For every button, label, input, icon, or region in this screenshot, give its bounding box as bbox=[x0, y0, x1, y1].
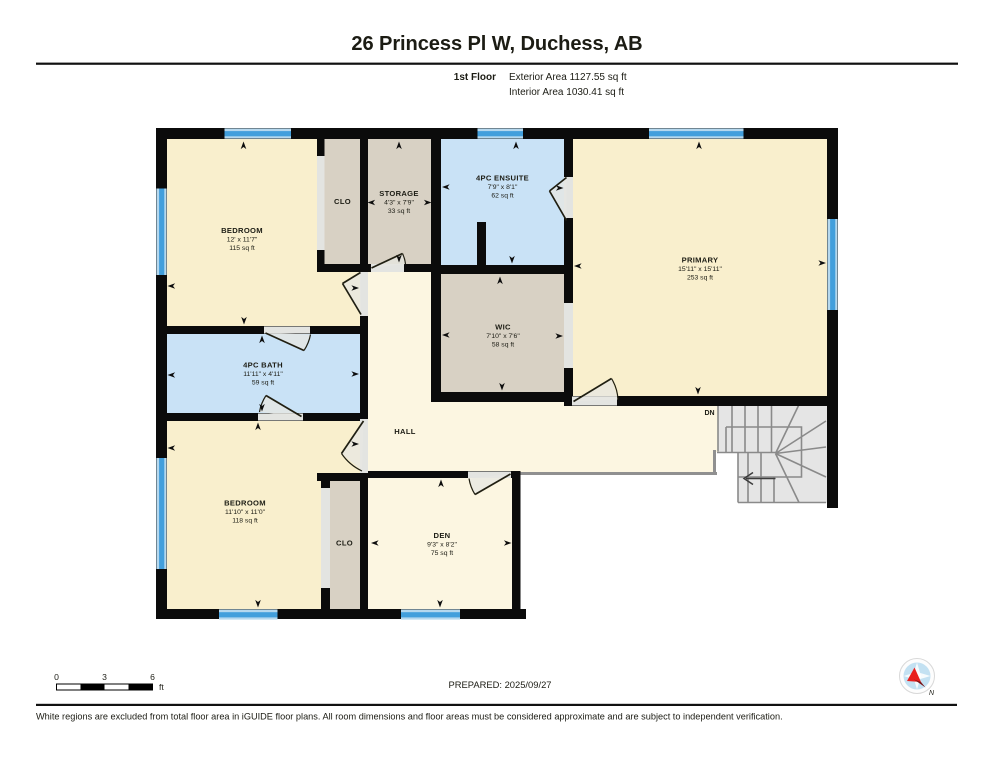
svg-text:1st Floor: 1st Floor bbox=[454, 72, 496, 83]
svg-text:ft: ft bbox=[159, 682, 164, 692]
svg-text:STORAGE: STORAGE bbox=[379, 189, 419, 198]
svg-text:7'9" x 8'1": 7'9" x 8'1" bbox=[488, 184, 518, 191]
svg-text:PREPARED: 2025/09/27: PREPARED: 2025/09/27 bbox=[448, 679, 551, 690]
svg-text:DEN: DEN bbox=[434, 531, 451, 540]
svg-text:4'3" x 7'9": 4'3" x 7'9" bbox=[384, 199, 414, 206]
svg-text:11'10" x 11'0": 11'10" x 11'0" bbox=[225, 509, 266, 516]
svg-text:115 sq ft: 115 sq ft bbox=[229, 245, 255, 252]
svg-text:6: 6 bbox=[150, 672, 155, 682]
svg-text:12' x 11'7": 12' x 11'7" bbox=[227, 236, 258, 243]
svg-text:DN: DN bbox=[704, 410, 714, 417]
svg-text:White regions are excluded fro: White regions are excluded from total fl… bbox=[36, 711, 783, 721]
svg-text:0: 0 bbox=[54, 672, 59, 682]
svg-text:BEDROOM: BEDROOM bbox=[221, 226, 263, 235]
svg-text:33 sq ft: 33 sq ft bbox=[388, 208, 410, 215]
svg-text:CLO: CLO bbox=[334, 197, 351, 206]
svg-text:11'11" x 4'11": 11'11" x 4'11" bbox=[243, 371, 283, 378]
svg-text:9'3" x 8'2": 9'3" x 8'2" bbox=[427, 541, 457, 548]
svg-text:253 sq ft: 253 sq ft bbox=[687, 274, 713, 281]
svg-text:26 Princess Pl W, Duchess, AB: 26 Princess Pl W, Duchess, AB bbox=[351, 33, 642, 55]
svg-text:58 sq ft: 58 sq ft bbox=[492, 341, 514, 348]
svg-text:CLO: CLO bbox=[336, 539, 353, 548]
svg-text:HALL: HALL bbox=[394, 427, 416, 436]
svg-text:PRIMARY: PRIMARY bbox=[682, 256, 719, 265]
svg-text:59 sq ft: 59 sq ft bbox=[252, 379, 274, 386]
svg-text:15'11" x 15'11": 15'11" x 15'11" bbox=[678, 266, 722, 273]
svg-text:4PC BATH: 4PC BATH bbox=[243, 361, 283, 370]
svg-text:Interior Area 1030.41 sq ft: Interior Area 1030.41 sq ft bbox=[509, 87, 624, 98]
svg-text:BEDROOM: BEDROOM bbox=[224, 499, 266, 508]
svg-text:62 sq ft: 62 sq ft bbox=[491, 192, 513, 199]
svg-text:WIC: WIC bbox=[495, 323, 511, 332]
svg-text:Exterior Area 1127.55 sq ft: Exterior Area 1127.55 sq ft bbox=[509, 72, 627, 83]
svg-text:7'10" x 7'6": 7'10" x 7'6" bbox=[486, 333, 520, 340]
svg-text:3: 3 bbox=[102, 672, 107, 682]
svg-text:4PC ENSUITE: 4PC ENSUITE bbox=[476, 174, 529, 183]
svg-text:N: N bbox=[929, 690, 935, 697]
svg-text:118 sq ft: 118 sq ft bbox=[232, 517, 258, 524]
svg-text:75 sq ft: 75 sq ft bbox=[431, 550, 453, 557]
